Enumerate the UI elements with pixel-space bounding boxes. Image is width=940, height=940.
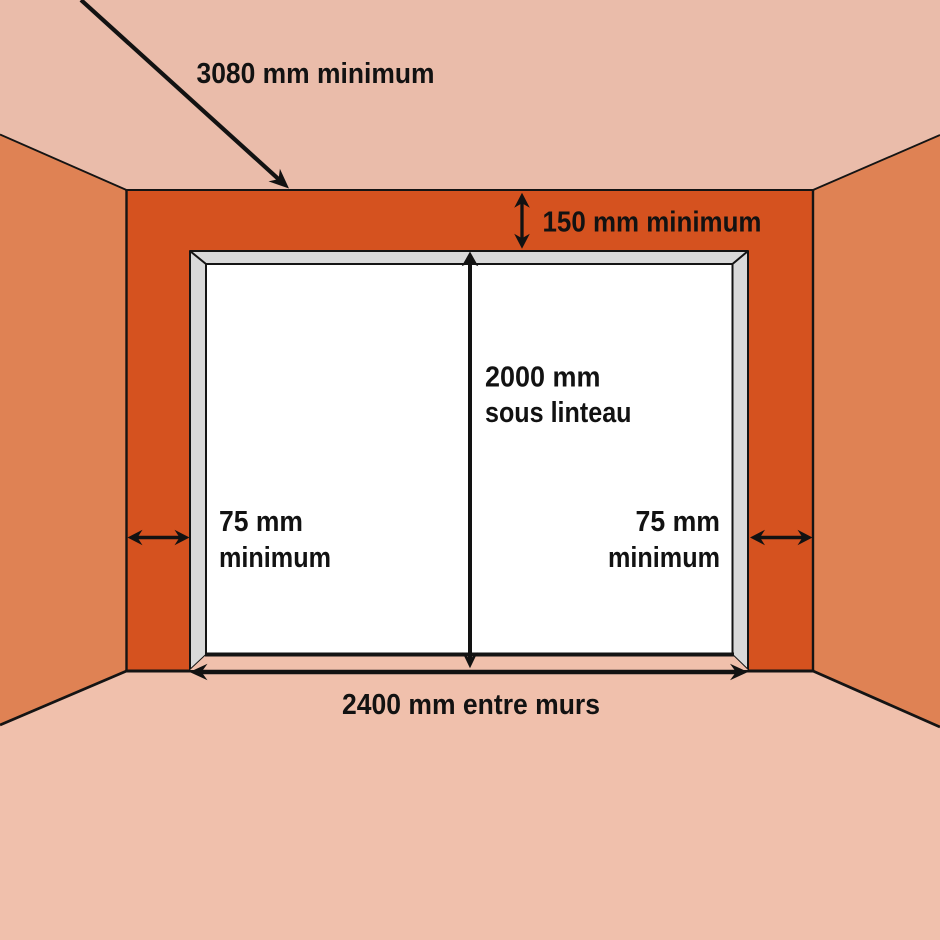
- svg-text:75 mm: 75 mm: [636, 506, 721, 538]
- svg-text:minimum: minimum: [608, 542, 720, 574]
- svg-text:75 mm: 75 mm: [219, 506, 303, 538]
- svg-text:minimum: minimum: [219, 542, 331, 574]
- svg-text:150 mm minimum: 150 mm minimum: [543, 207, 762, 239]
- svg-text:2000 mm: 2000 mm: [485, 362, 601, 394]
- svg-text:3080 mm minimum: 3080 mm minimum: [197, 58, 435, 90]
- svg-text:sous linteau: sous linteau: [485, 397, 632, 429]
- svg-text:2400 mm entre murs: 2400 mm entre murs: [342, 689, 600, 721]
